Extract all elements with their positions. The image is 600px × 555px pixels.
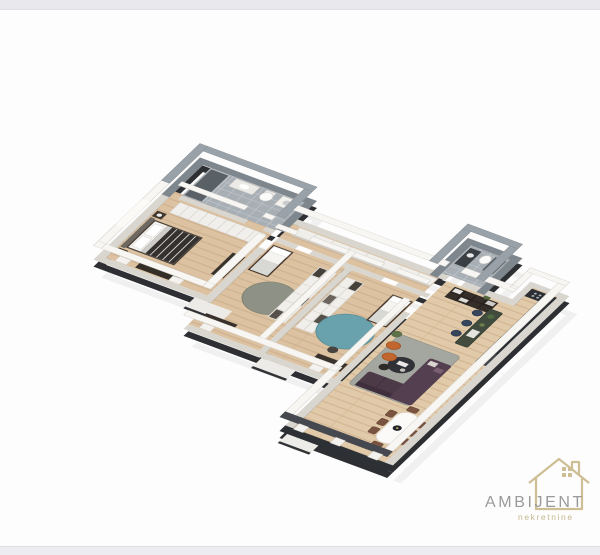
brand-name: AMBIJENT (485, 494, 585, 512)
brand-tagline: nekretnine (518, 512, 574, 522)
screenshot-root: AMBIJENT nekretnine (0, 0, 600, 555)
bottom-edge-bar (0, 546, 600, 555)
floorplan-render (0, 0, 600, 555)
